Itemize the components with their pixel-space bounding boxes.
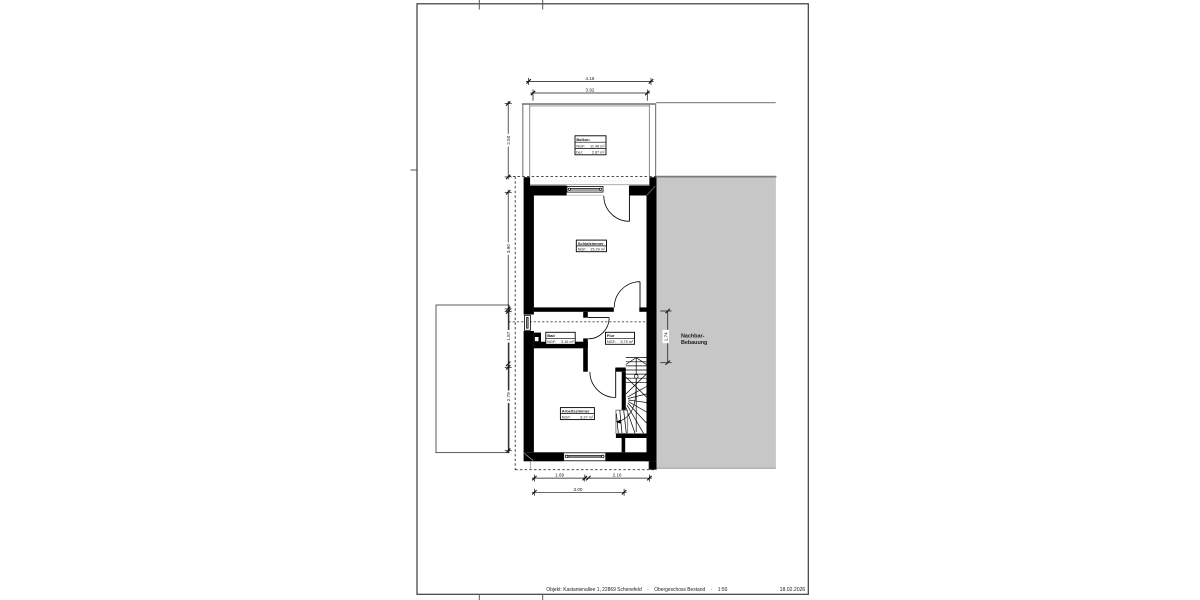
svg-text:Nachbar-: Nachbar- xyxy=(681,334,705,340)
svg-text:ber:: ber: xyxy=(576,151,583,155)
svg-text:3.00: 3.00 xyxy=(574,487,583,492)
svg-text:NGF:: NGF: xyxy=(562,416,571,420)
svg-text:18.02.2026: 18.02.2026 xyxy=(780,587,806,593)
svg-text:Bebauung: Bebauung xyxy=(681,340,707,346)
svg-text:8.37 m²: 8.37 m² xyxy=(580,416,594,420)
svg-text:3.79 m²: 3.79 m² xyxy=(620,340,634,344)
svg-text:Schlafzimmer: Schlafzimmer xyxy=(578,241,604,246)
svg-text:Objekt: Kastanienallee 1, 2286: Objekt: Kastanienallee 1, 22869 Schenefe… xyxy=(546,587,727,593)
svg-text:2.87 m²: 2.87 m² xyxy=(592,151,606,155)
svg-text:Balkon: Balkon xyxy=(576,137,590,142)
svg-text:Flur: Flur xyxy=(607,333,615,338)
svg-text:1.87: 1.87 xyxy=(506,331,511,340)
svg-text:3.90: 3.90 xyxy=(506,244,511,253)
svg-text:NGF:: NGF: xyxy=(607,340,616,344)
svg-text:4.18: 4.18 xyxy=(586,76,595,81)
svg-text:1.69: 1.69 xyxy=(555,473,564,478)
svg-text:NGF:: NGF: xyxy=(547,340,556,344)
svg-text:NGF:: NGF: xyxy=(576,144,585,148)
svg-text:15.29 m²: 15.29 m² xyxy=(590,248,606,252)
svg-text:2.16: 2.16 xyxy=(613,473,622,478)
svg-text:3.16 m²: 3.16 m² xyxy=(561,340,575,344)
svg-text:Arbeitszimmer: Arbeitszimmer xyxy=(562,408,590,413)
svg-text:Bad: Bad xyxy=(547,333,555,338)
svg-text:NGF:: NGF: xyxy=(578,248,587,252)
svg-text:11.48 m²: 11.48 m² xyxy=(590,144,605,148)
svg-text:2.79: 2.79 xyxy=(506,392,511,401)
svg-text:1.74: 1.74 xyxy=(663,332,668,341)
svg-text:3.92: 3.92 xyxy=(586,88,595,93)
svg-text:2.50: 2.50 xyxy=(506,135,511,144)
